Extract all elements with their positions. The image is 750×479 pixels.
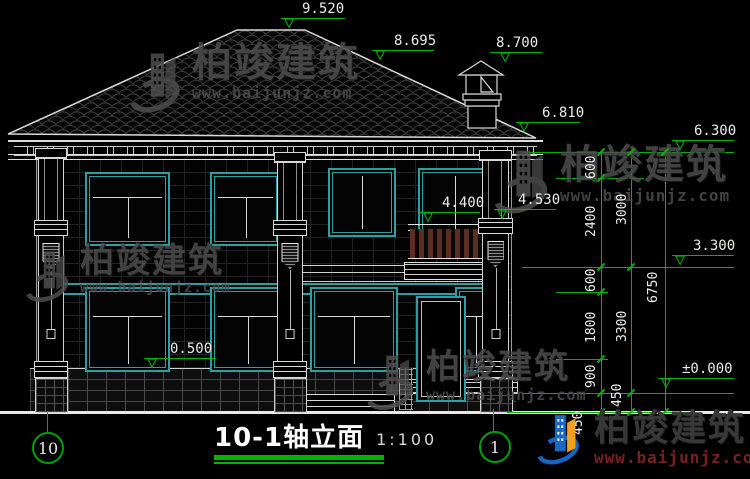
dim-chain-2: [631, 152, 632, 412]
elevation-value: 9.520: [302, 2, 345, 17]
drawing-title-block: 10-1轴立面 1:100: [214, 424, 437, 452]
axis-bubble-10: 10: [32, 432, 64, 464]
elevation-triangle-icon: ▽: [500, 51, 520, 64]
elevation-triangle-icon: ▽: [284, 17, 304, 30]
elevation-value: 3.300: [693, 239, 735, 254]
elevation-value: 8.695: [394, 34, 436, 49]
elevation-marker-balcony-rail: 4.400▽: [420, 196, 484, 224]
elevation-value: 4.400: [442, 196, 484, 211]
door-side-trellis: [399, 368, 413, 410]
elevation-value: 4.530: [518, 193, 560, 208]
dim-text-450-a: 450: [571, 408, 586, 438]
elevation-marker-chimney: 8.700▽: [490, 36, 542, 64]
window-1f-center: [310, 287, 398, 372]
dim-text-600-mid: 600: [584, 266, 599, 294]
elevation-triangle-icon: ▽: [147, 357, 167, 370]
elevation-value: ±0.000: [682, 362, 734, 377]
entry-door: [416, 296, 466, 402]
drawing-title: 10-1轴立面: [214, 424, 364, 452]
column-left: [38, 148, 64, 378]
dim-text-3000: 3000: [615, 182, 630, 236]
elevation-triangle-icon: ▽: [661, 377, 681, 390]
column-right: [482, 150, 509, 378]
window-2f-left-1: [85, 172, 170, 246]
elevation-marker-eave-main: 6.810▽: [516, 106, 584, 134]
title-underline-thin: [214, 462, 384, 464]
elevation-triangle-icon: ▽: [675, 139, 695, 152]
elevation-value: 6.810: [542, 106, 584, 121]
column-right-stone-pier: [480, 378, 513, 413]
dim-text-450-b: 450: [610, 380, 625, 410]
elevation-triangle-icon: ▽: [375, 49, 395, 62]
column-ornament-icon: [282, 243, 299, 269]
column-left-stone-pier: [35, 378, 68, 413]
axis-leader-right: [493, 409, 494, 431]
elevation-triangle-icon: ▽: [519, 121, 539, 134]
window-2f-right: [328, 168, 396, 237]
elevation-marker-eave-wing: 6.300▽: [672, 124, 736, 152]
balcony-balusters: [410, 229, 488, 258]
elevation-value: 0.500: [170, 342, 216, 357]
column-middle: [277, 152, 303, 378]
column-ornament-icon: [487, 241, 504, 267]
dim-text-600-top: 600: [584, 153, 599, 181]
elevation-marker-roof-mid: 8.695▽: [372, 34, 436, 62]
elevation-triangle-icon: ▽: [675, 254, 695, 267]
elevation-marker-ground: ±0.000▽: [658, 362, 734, 390]
elevation-marker-second-floor: 3.300▽: [672, 239, 735, 267]
elevation-triangle-icon: ▽: [423, 211, 443, 224]
elevation-drawing-canvas: 9.520▽ 8.695▽ 8.700▽ 6.810▽ 6.300▽ 4.400…: [0, 0, 750, 479]
elevation-marker-plinth: 0.500▽: [144, 342, 216, 370]
elevation-value: 6.300: [694, 124, 736, 139]
dim-chain-1: [601, 152, 602, 412]
elevation-marker-ridge: 9.520▽: [281, 2, 345, 30]
column-ornament-icon: [43, 243, 60, 269]
dim-text-3300: 3300: [615, 298, 630, 354]
drawing-scale: 1:100: [376, 428, 437, 452]
window-1f-left-2: [210, 287, 285, 372]
axis-number: 1: [490, 438, 500, 457]
balcony-slab: [404, 262, 494, 280]
axis-bubble-1: 1: [479, 431, 511, 463]
title-underline-thick: [214, 455, 384, 460]
dim-text-6750: 6750: [646, 258, 661, 316]
dim-text-1800: 1800: [584, 299, 599, 355]
window-2f-left-2: [210, 172, 281, 246]
dim-text-900: 900: [584, 357, 599, 395]
elevation-triangle-icon: ▽: [497, 208, 517, 221]
chimney: [459, 61, 503, 128]
axis-leader-left: [47, 411, 48, 432]
elevation-marker-column-capital: 4.530▽: [494, 193, 560, 221]
axis-number: 10: [38, 439, 58, 458]
column-middle-stone-pier: [274, 378, 307, 413]
dim-text-2400: 2400: [584, 194, 599, 248]
